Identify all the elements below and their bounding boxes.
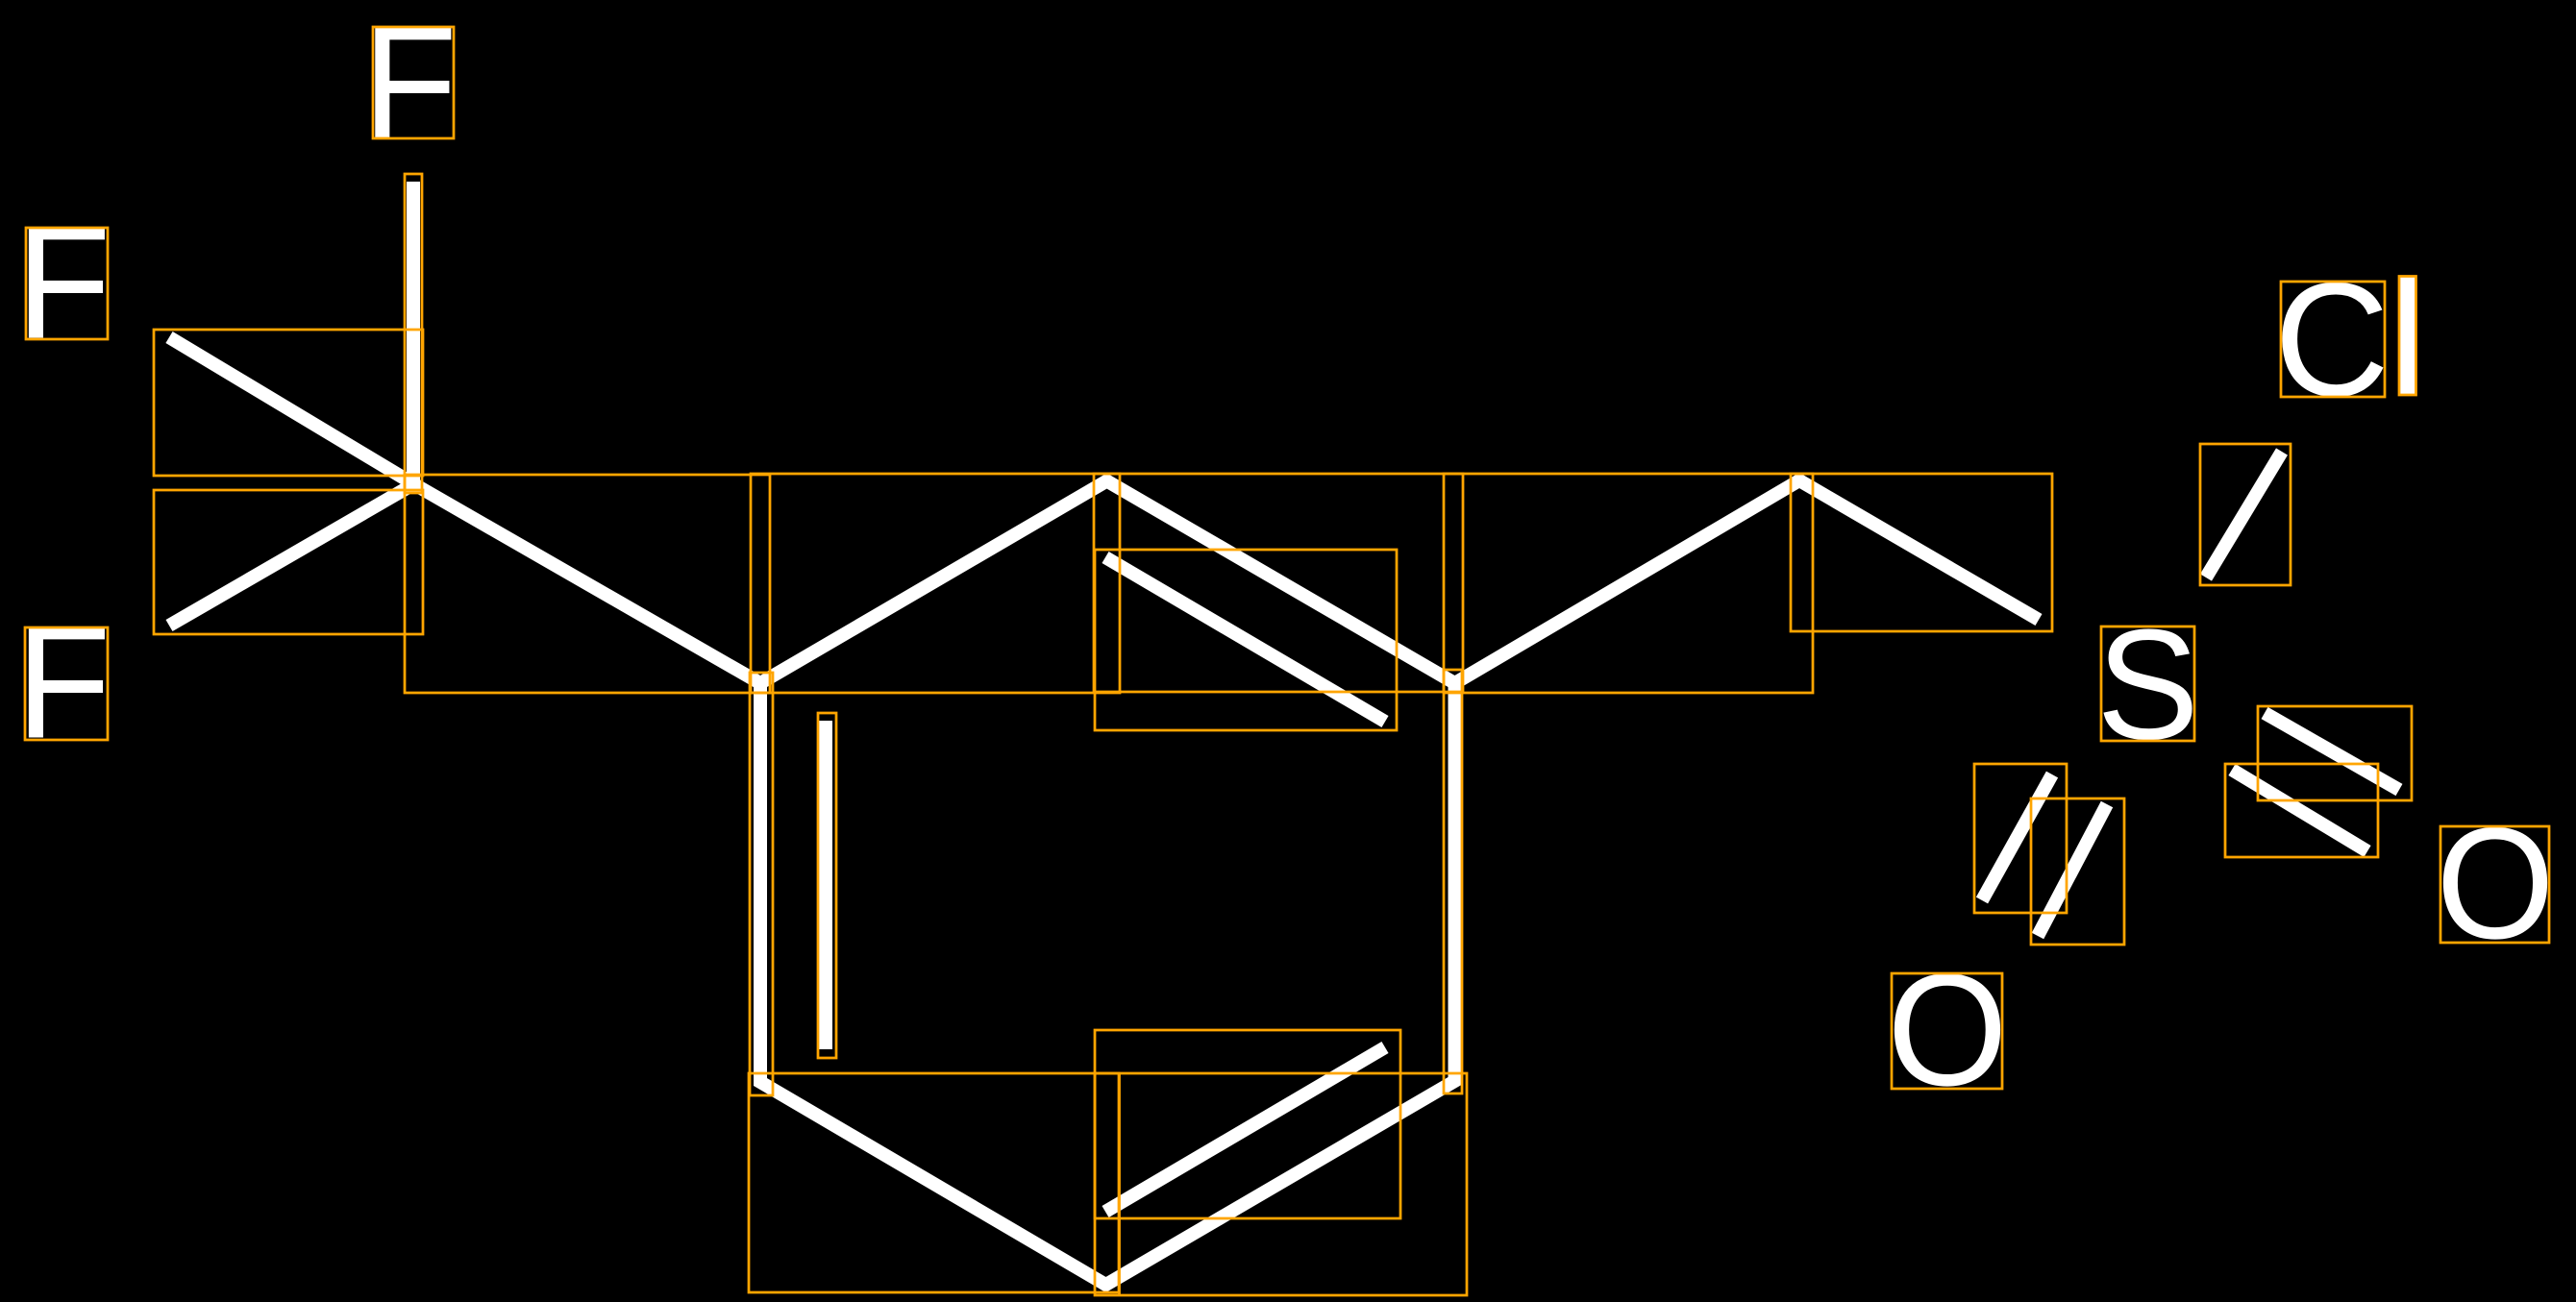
- svg-text:C: C: [2274, 249, 2390, 430]
- svg-text:F: F: [16, 194, 111, 373]
- svg-text:S: S: [2096, 597, 2199, 773]
- svg-text:l: l: [2389, 248, 2427, 430]
- svg-text:F: F: [16, 594, 111, 773]
- svg-text:O: O: [1887, 942, 2008, 1119]
- svg-text:O: O: [2436, 795, 2554, 971]
